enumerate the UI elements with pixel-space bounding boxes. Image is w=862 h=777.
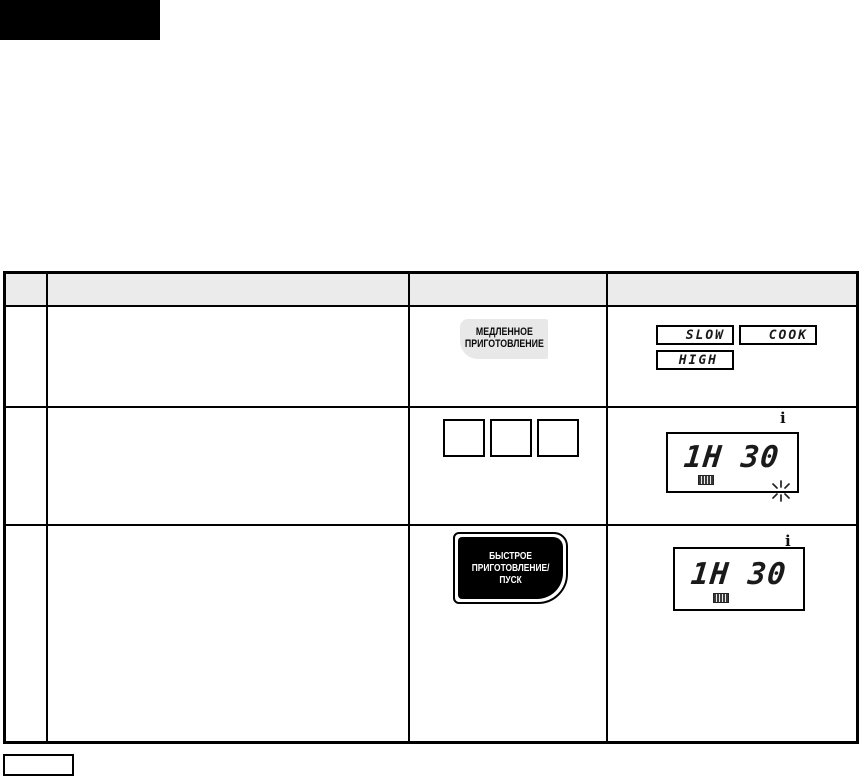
number-keypad	[443, 419, 579, 457]
dish-icon	[698, 475, 714, 485]
lcd-indicator-cook: COOK	[739, 325, 817, 345]
header-cell-button	[410, 274, 608, 307]
lcd-indicator-cook-label: COOK	[769, 328, 808, 343]
time-readout: 1H 30	[682, 440, 781, 475]
slow-cook-button-label: МЕДЛЕННОЕ ПРИГОТОВЛЕНИЕ	[465, 327, 544, 351]
row1-instruction-cell	[48, 307, 410, 408]
number-button-1[interactable]	[443, 419, 485, 457]
row3-display-cell: i 1H 30	[608, 526, 856, 741]
title-banner	[0, 0, 160, 40]
row3-button-cell: БЫСТРОЕ ПРИГОТОВЛЕНИЕ/ ПУСК	[410, 526, 608, 741]
steps-table: МЕДЛЕННОЕ ПРИГОТОВЛЕНИЕ SLOW COOK HIGH i…	[3, 271, 859, 744]
quick-cook-start-button-face: БЫСТРОЕ ПРИГОТОВЛЕНИЕ/ ПУСК	[458, 537, 563, 599]
number-button-3[interactable]	[537, 419, 579, 457]
quick-cook-start-button-label: БЫСТРОЕ ПРИГОТОВЛЕНИЕ/ ПУСК	[472, 550, 550, 586]
lcd-indicator-high: HIGH	[656, 350, 734, 370]
header-cell-display	[608, 274, 856, 307]
quick-cook-start-button[interactable]: БЫСТРОЕ ПРИГОТОВЛЕНИЕ/ ПУСК	[453, 532, 568, 604]
row2-display-cell: i 1H 30	[608, 408, 856, 526]
row1-display-cell: SLOW COOK HIGH	[608, 307, 856, 408]
lcd-indicator-slow: SLOW	[656, 325, 734, 345]
row2-step-cell	[6, 408, 48, 526]
dish-icon	[713, 593, 729, 603]
row1-button-cell: МЕДЛЕННОЕ ПРИГОТОВЛЕНИЕ	[410, 307, 608, 408]
slow-cook-button[interactable]: МЕДЛЕННОЕ ПРИГОТОВЛЕНИЕ	[460, 319, 548, 359]
lcd-time-display: 1H 30	[673, 547, 805, 611]
row3-step-cell	[6, 526, 48, 741]
header-cell-instruction	[48, 274, 410, 307]
footer-note-box	[3, 754, 74, 776]
info-icon: i	[780, 411, 786, 426]
time-readout: 1H 30	[689, 557, 788, 592]
lcd-time-display: 1H 30	[666, 432, 799, 493]
number-button-2[interactable]	[490, 419, 532, 457]
row3-instruction-cell	[48, 526, 410, 741]
row2-instruction-cell	[48, 408, 410, 526]
lcd-indicator-slow-label: SLOW	[686, 328, 725, 343]
lcd-indicator-high-label: HIGH	[679, 353, 718, 368]
header-cell-step	[6, 274, 48, 307]
row1-step-cell	[6, 307, 48, 408]
flashing-rays-icon	[769, 478, 793, 504]
row2-button-cell	[410, 408, 608, 526]
